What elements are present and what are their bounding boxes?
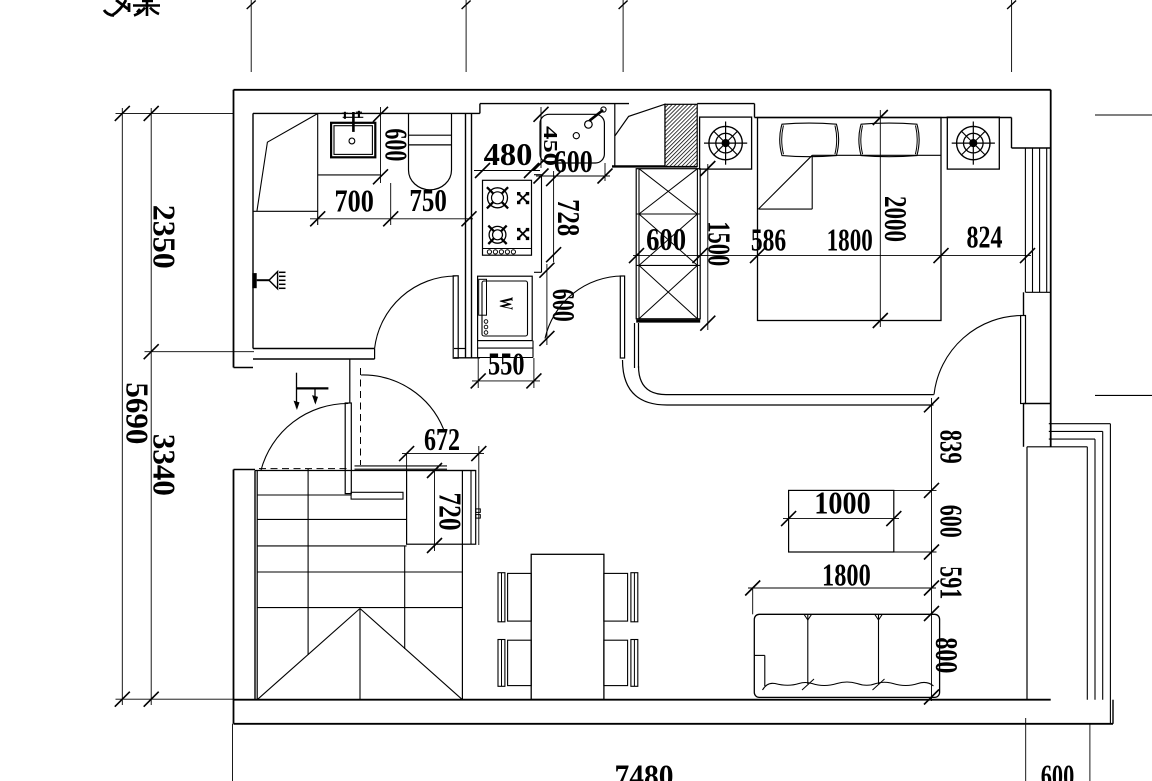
- svg-text:7480: 7480: [615, 758, 674, 781]
- svg-text:600: 600: [546, 289, 582, 322]
- svg-text:1800: 1800: [827, 222, 873, 258]
- svg-text:600: 600: [1041, 758, 1075, 781]
- svg-text:600: 600: [379, 128, 415, 161]
- svg-text:839: 839: [934, 430, 970, 464]
- svg-text:728: 728: [551, 199, 587, 236]
- svg-text:W: W: [495, 297, 516, 310]
- svg-text:600: 600: [934, 505, 970, 538]
- svg-text:600: 600: [646, 221, 686, 257]
- svg-text:591: 591: [934, 566, 970, 599]
- svg-text:1500: 1500: [702, 221, 738, 266]
- svg-text:1800: 1800: [822, 556, 871, 592]
- svg-text:550: 550: [488, 346, 525, 382]
- svg-text:2350: 2350: [146, 205, 182, 269]
- svg-text:2000: 2000: [878, 196, 914, 242]
- svg-text:720: 720: [433, 493, 469, 531]
- svg-text:750: 750: [409, 182, 446, 218]
- svg-text:824: 824: [967, 219, 1003, 255]
- svg-text:3340: 3340: [146, 434, 182, 496]
- svg-text:480: 480: [484, 136, 533, 172]
- svg-text:672: 672: [424, 421, 460, 457]
- svg-text:586: 586: [751, 222, 786, 258]
- svg-text:800: 800: [929, 637, 965, 673]
- svg-text:1000: 1000: [814, 485, 870, 521]
- svg-text:700: 700: [335, 182, 374, 218]
